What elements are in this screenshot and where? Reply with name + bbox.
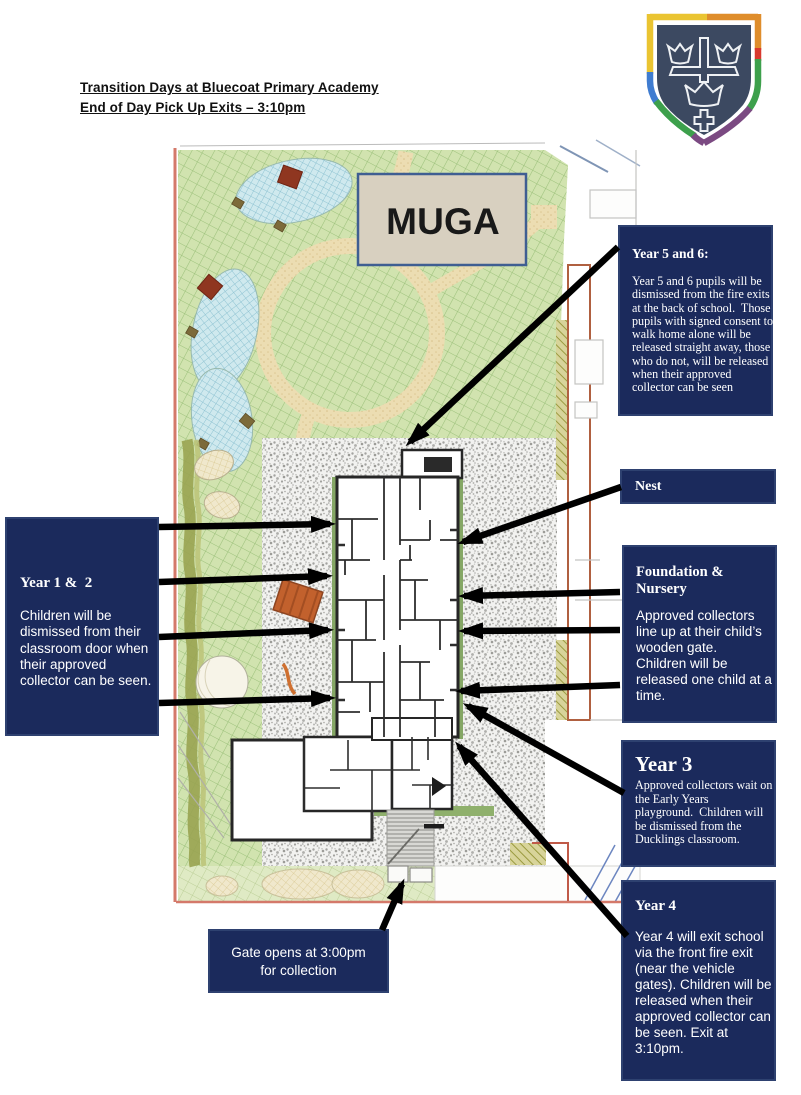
svg-text:MUGA: MUGA [386, 201, 500, 242]
